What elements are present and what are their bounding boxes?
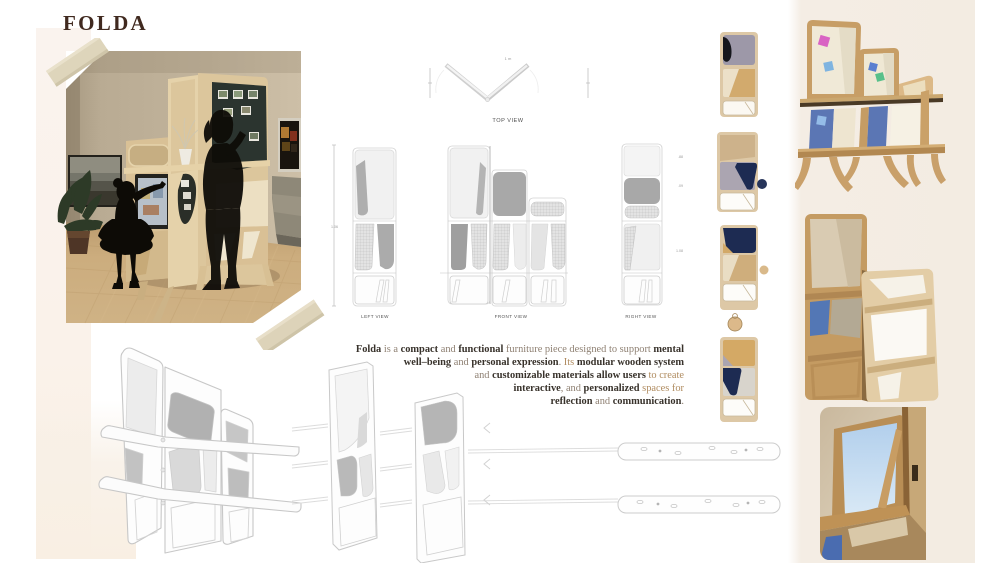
svg-text:1 m: 1 m [505, 56, 512, 61]
svg-text:LEFT VIEW: LEFT VIEW [361, 314, 389, 319]
svg-text:1.08: 1.08 [676, 249, 683, 253]
svg-text:FRONT VIEW: FRONT VIEW [495, 314, 528, 319]
svg-text:TOP VIEW: TOP VIEW [492, 118, 523, 124]
svg-text:RIGHT VIEW: RIGHT VIEW [625, 314, 656, 319]
svg-text:.88: .88 [678, 155, 683, 159]
svg-text:.09: .09 [678, 184, 683, 188]
svg-text:1.06: 1.06 [331, 225, 338, 229]
